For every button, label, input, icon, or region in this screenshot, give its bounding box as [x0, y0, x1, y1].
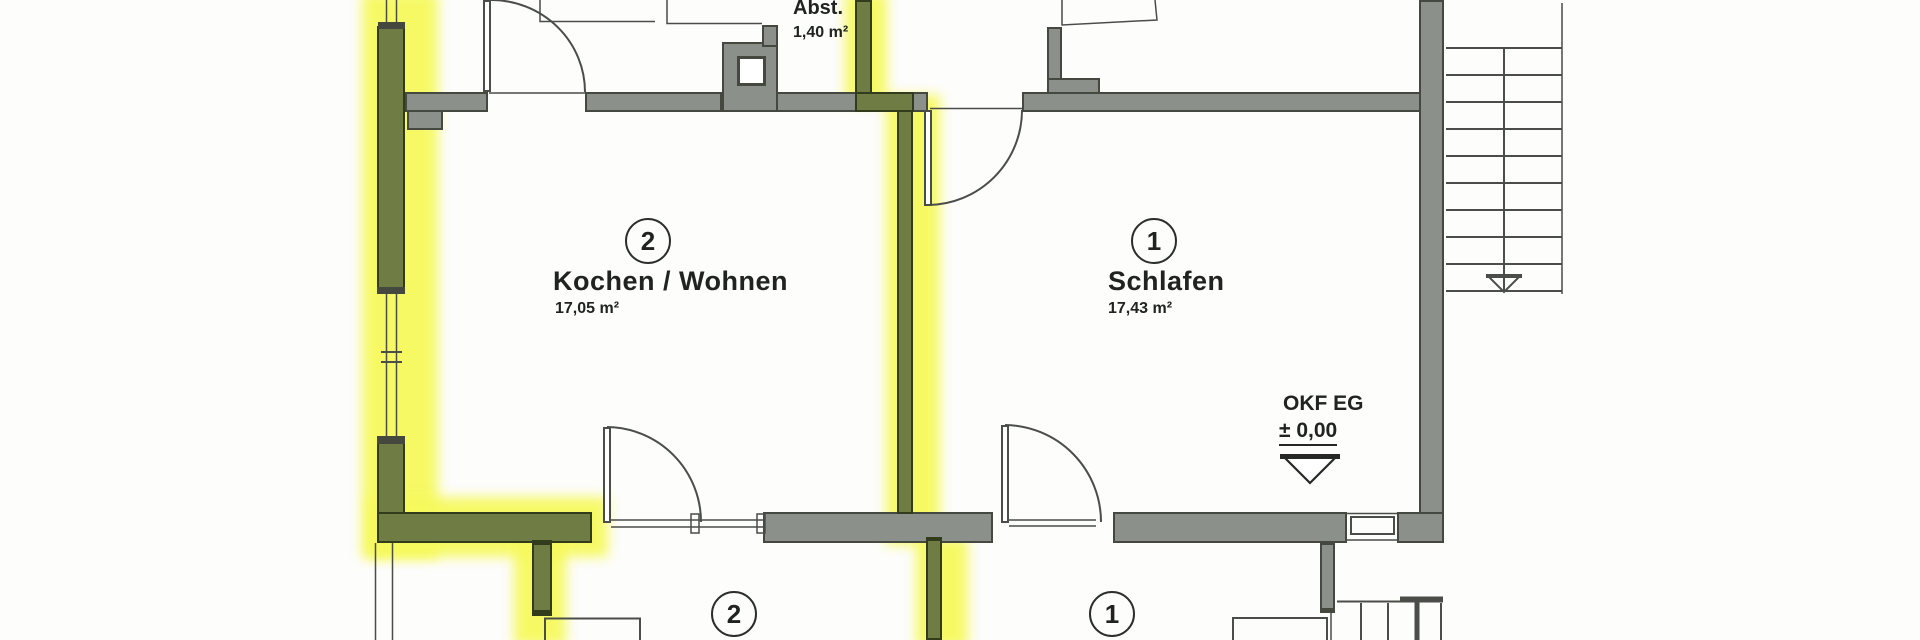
lower-opening-left [545, 619, 640, 640]
window-bottom-right [1347, 514, 1397, 541]
upper-room-outline-1 [540, 0, 655, 22]
window-cap-mid-bottom [377, 436, 405, 444]
lower-opening-right [1233, 618, 1327, 640]
level-marker-value: ± 0,00 [1279, 419, 1337, 446]
door-arc-kochen-bottom [607, 427, 701, 522]
plan-linework [0, 0, 1920, 640]
upper-room-outline-2 [667, 0, 762, 24]
window-cap-mid-top [377, 287, 405, 294]
room-area-schlafen: 17,43 m² [1108, 300, 1172, 318]
room-label-schlafen: Schlafen [1108, 266, 1225, 297]
room-label-kochen: Kochen / Wohnen [553, 266, 788, 297]
room-number-kochen: 2 [625, 218, 671, 264]
door-arc-schlafen-top [928, 110, 1022, 205]
room-area-kochen: 17,05 m² [555, 300, 619, 318]
staircase-lower-partial [1331, 599, 1443, 640]
room-number-lower-right: 1 [1089, 591, 1135, 637]
level-marker-label: OKF EG [1283, 392, 1364, 416]
door-arc-schlafen-bottom [1005, 425, 1101, 522]
room-label-abst: Abst. [793, 0, 843, 20]
door-arc-top-left [491, 0, 585, 92]
room-number-schlafen: 1 [1131, 218, 1177, 264]
threshold-mullion-2 [757, 514, 765, 533]
level-datum-triangle-icon [1280, 456, 1340, 483]
floor-plan-canvas: Abst. 1,40 m² 2 Kochen / Wohnen 17,05 m²… [0, 0, 1920, 640]
room-number-lower-left: 2 [711, 591, 757, 637]
upper-room-outline-3 [1062, 0, 1157, 25]
window-cap-top [378, 22, 405, 29]
threshold-mullion-1 [691, 514, 699, 533]
room-area-abst: 1,40 m² [793, 24, 848, 42]
staircase-upper [1446, 3, 1562, 294]
